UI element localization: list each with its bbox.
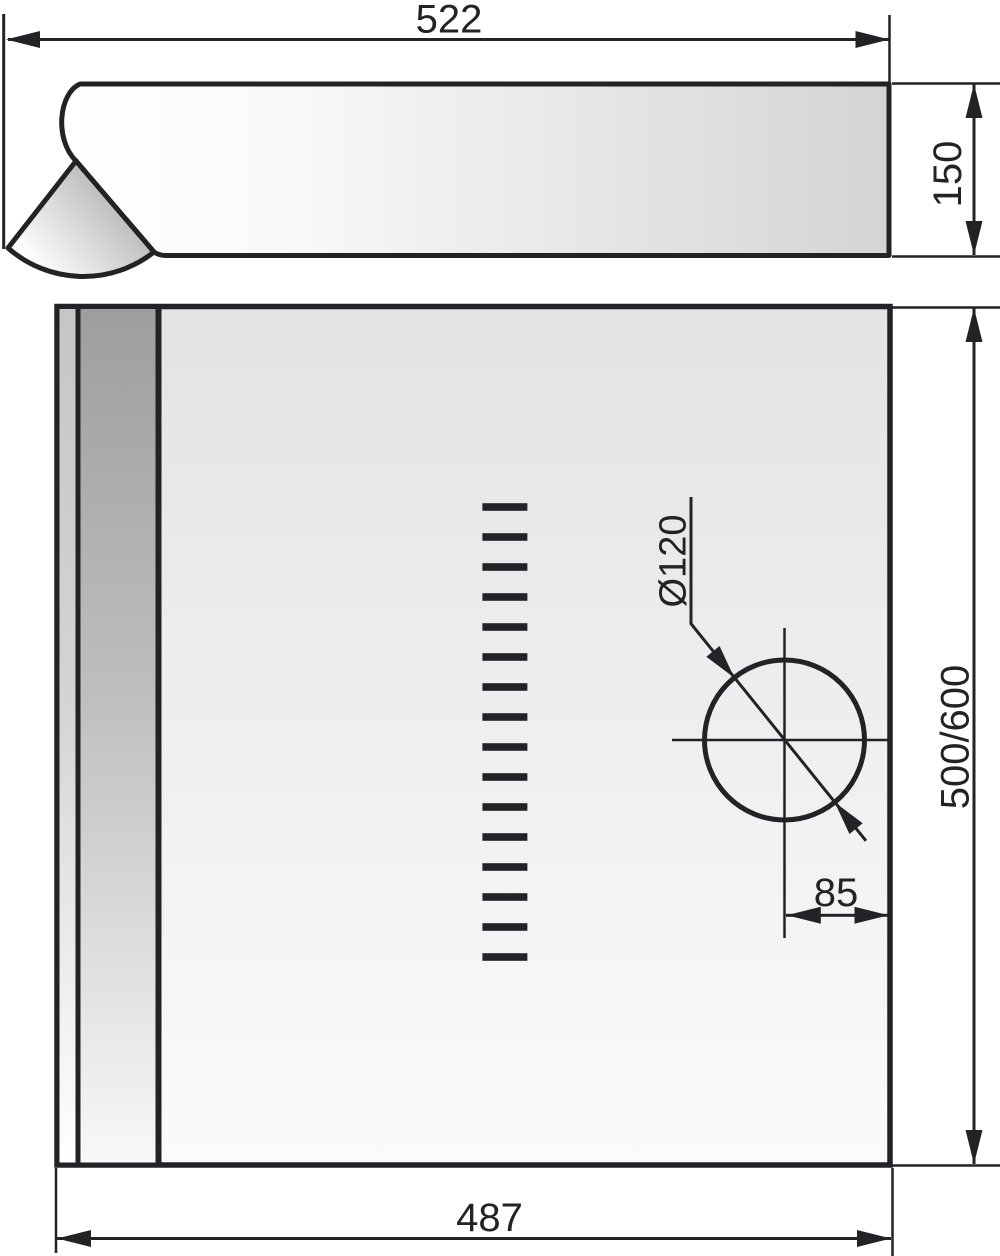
svg-text:85: 85 [814,871,859,915]
svg-text:522: 522 [416,0,483,42]
svg-text:500/600: 500/600 [934,665,978,810]
svg-text:150: 150 [926,141,970,208]
svg-text:Ø120: Ø120 [653,515,695,608]
svg-text:487: 487 [456,1196,523,1240]
